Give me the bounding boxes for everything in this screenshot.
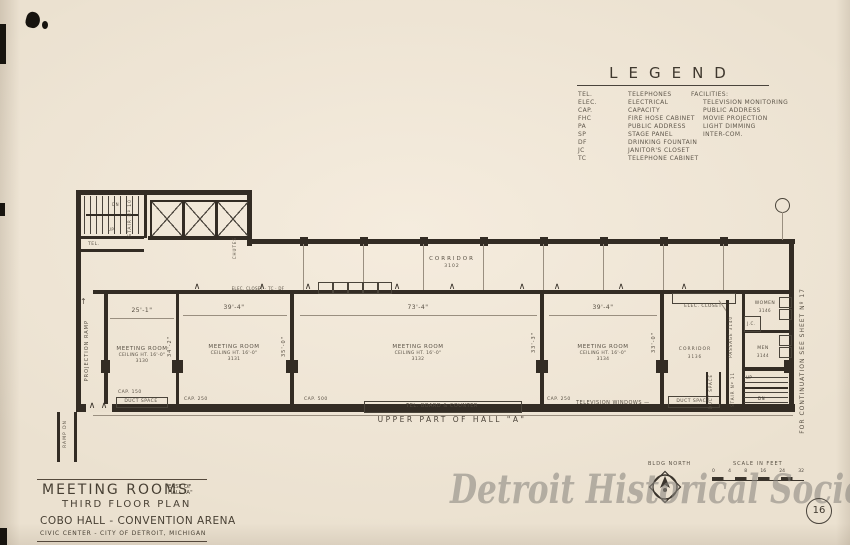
- pilaster: [656, 360, 668, 373]
- stair-11-label: STAIR Nº 11: [730, 372, 735, 407]
- door-swing-icon: ∧: [681, 283, 688, 291]
- column-grid-bubble: [775, 198, 790, 213]
- legend-facility: PUBLIC ADDRESS: [703, 107, 761, 114]
- corridor-label: CORRIDOR 3102: [429, 256, 475, 270]
- corridor-right-label: CORRIDOR 3136: [679, 346, 711, 360]
- wall-segment: [250, 239, 795, 244]
- pilaster: [101, 360, 110, 373]
- legend-underline: [577, 85, 769, 86]
- wall-segment: [719, 372, 721, 404]
- closet-box: [318, 282, 333, 294]
- legend-desc: DRINKING FOUNTAIN: [628, 139, 697, 146]
- wall-segment: [80, 236, 144, 239]
- room-side-dim: 33'-3": [531, 332, 537, 353]
- men-room-label: MEN 3144: [757, 345, 769, 359]
- legend-abbr: SP: [578, 131, 586, 138]
- door-swing-icon: ∧: [618, 283, 625, 291]
- wall-segment: [104, 290, 108, 408]
- fixture: [779, 335, 792, 346]
- titleblock-rule: [37, 541, 207, 542]
- room-width-dim: 39'-4": [223, 304, 244, 311]
- stair-dn-label: DN: [758, 395, 765, 402]
- room-name: MEETING ROOM: [392, 344, 443, 351]
- legend-abbr: TEL.: [578, 91, 592, 98]
- dimension-line: [110, 318, 174, 319]
- legend-desc: PUBLIC ADDRESS: [628, 123, 686, 130]
- stair-10-label: STAIR Nº 10: [128, 199, 133, 237]
- corridor-right-name: CORRIDOR: [679, 346, 711, 353]
- leader-line: [782, 212, 783, 240]
- door-swing-icon: ∧: [394, 283, 401, 291]
- wall-segment: [540, 294, 544, 404]
- room-name: MEETING ROOM: [208, 344, 259, 351]
- scan-mark: [0, 203, 5, 216]
- pilaster: [536, 360, 548, 373]
- column: [600, 237, 608, 246]
- sheet-number-badge: 16: [806, 498, 832, 524]
- wall-segment: [290, 294, 294, 404]
- stair-dn-label: DN: [112, 201, 119, 208]
- room-label: MEETING ROOM CEILING HT. 16'-0" 3132: [392, 344, 443, 364]
- duct-space-label: DUCT SPACE: [676, 398, 709, 405]
- column-line: [663, 244, 664, 290]
- chutes-label: CHUTES: [232, 237, 237, 259]
- dimension-line: [549, 315, 657, 316]
- corridor-name: CORRIDOR: [429, 256, 475, 263]
- legend-desc: ELECTRICAL: [628, 99, 668, 106]
- duct-space-label: DUCT SPACE: [124, 398, 157, 405]
- room-label: MEETING ROOM CEILING HT. 16'-0" 3131: [208, 344, 259, 364]
- room-width-dim: 39'-4": [592, 304, 613, 311]
- room-side-dim: 34'-2": [167, 336, 173, 357]
- legend-facility: LIGHT DIMMING: [703, 123, 756, 130]
- wall-segment: [176, 294, 179, 404]
- wall-segment: [74, 412, 77, 462]
- column-line: [483, 244, 484, 290]
- column-line: [423, 244, 424, 290]
- legend-abbr: TC: [578, 155, 586, 162]
- fixture: [779, 297, 792, 308]
- men-name: MEN: [757, 345, 769, 352]
- women-name: WOMEN: [755, 300, 776, 307]
- scan-mark: [42, 21, 48, 29]
- legend-desc: TELEPHONE CABINET: [628, 155, 699, 162]
- column-line: [543, 244, 544, 290]
- legend-abbr: ELEC.: [578, 99, 597, 106]
- column: [480, 237, 488, 246]
- television-windows-label: TELEVISION WINDOWS —: [576, 400, 650, 407]
- closet-row-label: ELEC. CLOSET · TC · DF: [232, 285, 285, 292]
- column: [300, 237, 308, 246]
- men-number: 3144: [757, 352, 769, 359]
- wall-segment: [742, 367, 792, 371]
- legend-facility: MOVIE PROJECTION: [703, 115, 768, 122]
- building-location: CIVIC CENTER - CITY OF DETROIT, MICHIGAN: [40, 530, 206, 537]
- legend-abbr: PA: [578, 123, 586, 130]
- capacity-label: CAP. 150: [118, 389, 142, 396]
- legend-desc: FIRE HOSE CABINET: [628, 115, 695, 122]
- legend-title: LEGEND: [577, 64, 769, 82]
- wall-segment: [789, 239, 794, 412]
- room-width-dim: 25'-1": [131, 307, 152, 314]
- capacity-label: CAP. 250: [547, 396, 571, 403]
- door-swing-icon: ∧: [101, 402, 108, 410]
- corridor-right-number: 3136: [679, 353, 711, 360]
- up-arrow-icon: ↑: [80, 298, 87, 305]
- women-number: 3146: [755, 307, 776, 314]
- corridor-number: 3102: [429, 263, 475, 270]
- room-number: 3132: [392, 357, 443, 364]
- legend-abbr: DF: [578, 139, 587, 146]
- column: [360, 237, 368, 246]
- scan-mark: [24, 10, 42, 29]
- sheet-title-suffix: EAST OF HALL "A": [168, 484, 193, 496]
- room-number: 3130: [116, 359, 167, 366]
- wall-segment: [144, 194, 147, 238]
- capacity-label: CAP. 250: [184, 396, 208, 403]
- projection-ramp-label: PROJECTION RAMP: [84, 320, 90, 381]
- scan-mark: [0, 528, 7, 545]
- stair-up-label: UP: [746, 374, 752, 381]
- sheet-subtitle: THIRD FLOOR PLAN: [62, 499, 191, 510]
- closet-box: [378, 282, 392, 294]
- column-line: [723, 244, 724, 290]
- women-room-label: WOMEN 3146: [755, 300, 776, 314]
- door-swing-icon: ∧: [89, 402, 96, 410]
- elevator-shaft: [150, 200, 184, 238]
- column: [660, 237, 668, 246]
- legend-abbr: FHC: [578, 115, 591, 122]
- building-name: COBO HALL - CONVENTION ARENA: [40, 515, 236, 527]
- closet-box: [363, 282, 378, 294]
- legend-facilities-title: FACILITIES:: [691, 91, 728, 98]
- tel-board-label: TEL. BOARD & COUNTER: [406, 403, 478, 410]
- suffix-line2: HALL "A": [168, 490, 193, 496]
- blueprint-sheet: LEGEND TEL.TELEPHONES ELEC.ELECTRICAL CA…: [0, 0, 850, 545]
- room-side-dim: 35'-0": [281, 336, 287, 357]
- continuation-note: FOR CONTINUATION SEE SHEET Nº 17: [799, 288, 806, 434]
- legend-desc: STAGE PANEL: [628, 131, 673, 138]
- passage-label: PASSAGE 3140: [728, 316, 733, 358]
- dimension-line: [183, 315, 287, 316]
- watermark: Detroit Historical Society: [450, 466, 850, 513]
- room-number: 3131: [208, 357, 259, 364]
- column: [420, 237, 428, 246]
- dimension-line: [300, 315, 537, 316]
- stair-up-label: UP: [108, 226, 114, 233]
- janitor-closet-label: J.C.: [747, 320, 756, 327]
- column: [720, 237, 728, 246]
- upper-hall-label: UPPER PART OF HALL "A": [378, 416, 527, 423]
- legend-desc: CAPACITY: [628, 107, 660, 114]
- room-name: MEETING ROOM: [577, 344, 628, 351]
- door-swing-icon: ∧: [519, 283, 526, 291]
- wall-segment: [57, 412, 60, 462]
- room-label: MEETING ROOM CEILING HT. 16'-0" 3130: [116, 346, 167, 366]
- titleblock-rule: [37, 479, 207, 480]
- legend-desc: TELEPHONES: [628, 91, 672, 98]
- scan-mark: [0, 24, 6, 64]
- door-swing-icon: ∧: [305, 283, 312, 291]
- wall-segment: [80, 249, 144, 252]
- room-name: MEETING ROOM: [116, 346, 167, 353]
- stair-rail: [744, 387, 788, 389]
- legend-desc: JANITOR'S CLOSET: [628, 147, 690, 154]
- elevator-shaft: [216, 200, 250, 238]
- fixture: [779, 347, 792, 358]
- legend-facility: TELEVISION MONITORING: [703, 99, 788, 106]
- column-line: [603, 244, 604, 290]
- capacity-label: CAP. 500: [304, 396, 328, 403]
- door-swing-icon: ∧: [554, 283, 561, 291]
- ramp-dn-label: RAMP DN: [63, 420, 68, 448]
- pilaster: [172, 360, 183, 373]
- wall-segment: [660, 294, 664, 404]
- door-swing-icon: ∧: [194, 283, 201, 291]
- room-side-dim: 33'-0": [651, 332, 657, 353]
- door-swing-icon: ∧: [449, 283, 456, 291]
- room-label: MEETING ROOM CEILING HT. 16'-0" 3134: [577, 344, 628, 364]
- tel-room-label: TEL.: [88, 241, 100, 248]
- elec-closet-label: ELEC. CLOSET: [684, 303, 722, 310]
- pilaster: [286, 360, 298, 373]
- duct-space-vertical-label: DUCT SPACE: [708, 374, 713, 409]
- sheet-title: MEETING ROOMS: [42, 482, 189, 498]
- wall-segment: [76, 190, 252, 195]
- elevator-shaft: [183, 200, 217, 238]
- room-number: 3134: [577, 357, 628, 364]
- legend-abbr: CAP.: [578, 107, 593, 114]
- legend-facility: INTER-COM.: [703, 131, 743, 138]
- closet-box: [348, 282, 363, 294]
- fixture: [779, 309, 792, 320]
- column: [540, 237, 548, 246]
- room-width-dim: 73'-4": [407, 304, 428, 311]
- legend-abbr: JC: [578, 147, 585, 154]
- closet-box: [333, 282, 348, 294]
